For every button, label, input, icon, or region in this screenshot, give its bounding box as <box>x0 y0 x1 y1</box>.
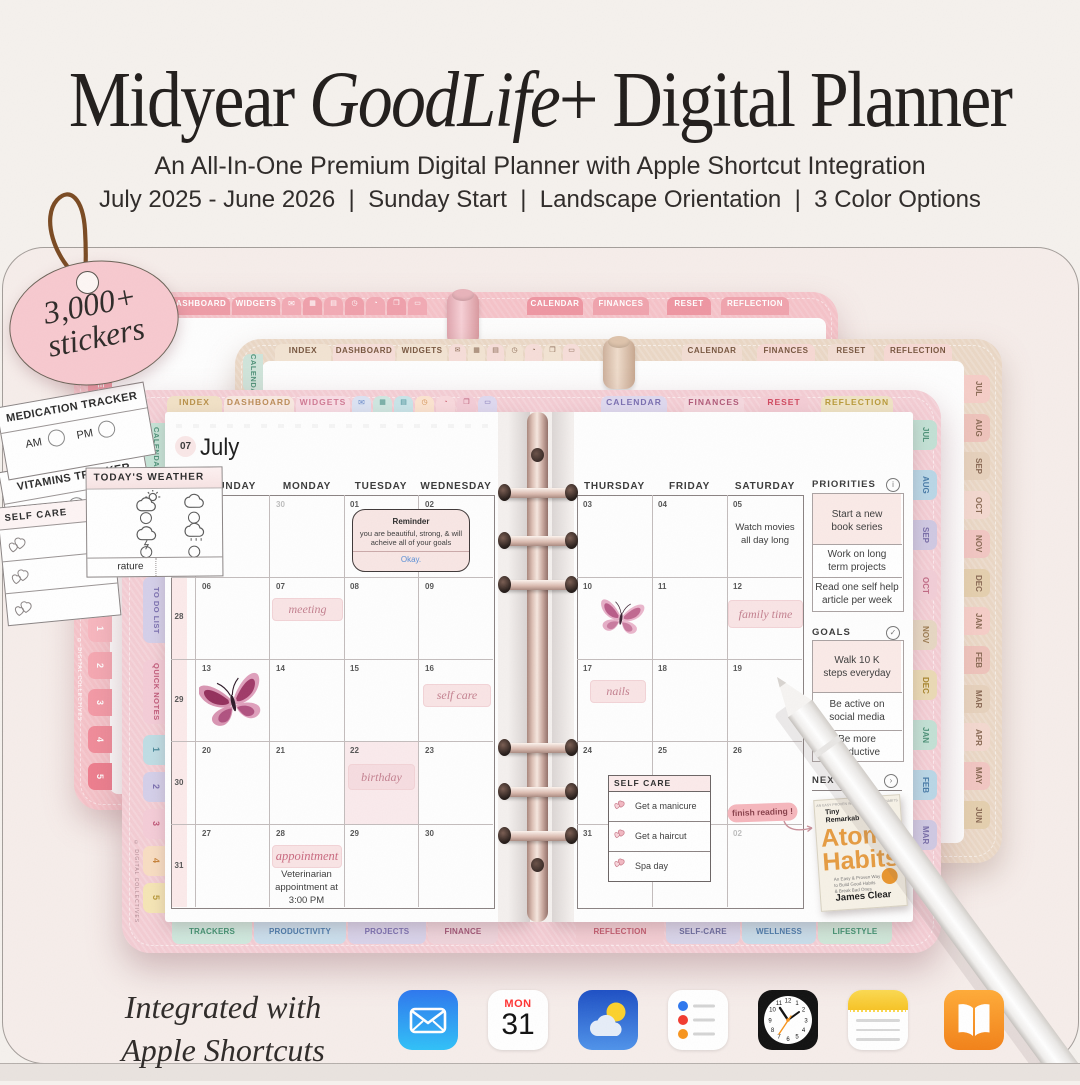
svg-text:10: 10 <box>769 1008 776 1014</box>
svg-text:12: 12 <box>785 999 792 1005</box>
svg-text:11: 11 <box>776 1001 783 1007</box>
